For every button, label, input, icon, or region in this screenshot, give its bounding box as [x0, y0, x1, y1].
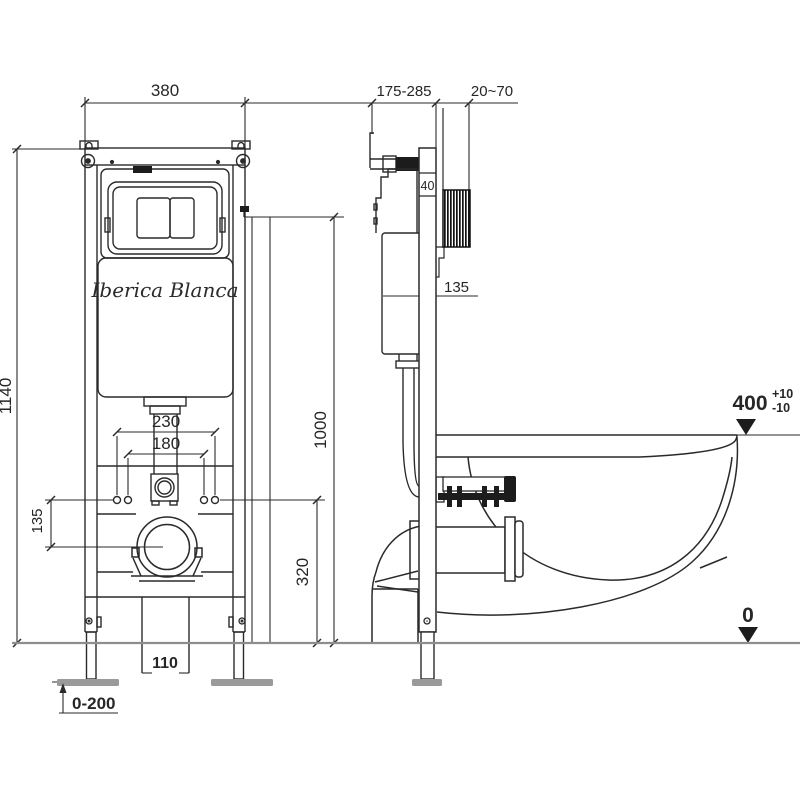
installation-frame-diagram: 380 175-285 20~70 1140 40 135 230 180 10… [0, 0, 800, 800]
dim-flush-height: 1000 [311, 411, 330, 449]
dim-foot-adjust: 0-200 [72, 694, 115, 713]
dim-outlet-height: 320 [293, 558, 312, 586]
dim-bolt-outer: 230 [152, 412, 180, 431]
toilet-bowl [436, 435, 737, 615]
dim-bolt-inner: 180 [152, 434, 180, 453]
dim-floor-level: 0 [742, 604, 754, 627]
dimension-ticks [13, 99, 473, 647]
side-foot-plate [412, 679, 442, 686]
dim-rail-depth: 40 [421, 179, 435, 193]
dim-inlet-offset: 135 [444, 279, 469, 296]
flush-plate [101, 169, 229, 258]
dim-tol-plus: +10 [772, 387, 793, 401]
dim-bottom-gap: 110 [152, 655, 178, 672]
brand-logo-text: Iberica Blanca [90, 278, 238, 302]
supply-valve-icon [240, 206, 249, 217]
level-marker-400-icon [736, 419, 756, 435]
dim-frame-height: 1140 [0, 378, 15, 415]
dim-tol-minus: -10 [772, 401, 790, 415]
dim-bowl-height: 400 [732, 392, 767, 415]
foot-plate-right [211, 679, 273, 686]
dim-outlet-offset: 135 [29, 508, 46, 533]
dim-depth-range: 175-285 [376, 83, 431, 100]
technical-drawing-page: 380 175-285 20~70 1140 40 135 230 180 10… [0, 0, 800, 800]
foot-plate-left [57, 679, 119, 686]
dim-wall-range: 20~70 [471, 83, 513, 100]
flush-button-small [170, 198, 194, 238]
flush-button-large [137, 198, 170, 238]
dim-frame-width: 380 [151, 81, 179, 100]
fixing-rods [436, 476, 516, 507]
side-view [370, 108, 758, 686]
wall-sleeve-hatch [443, 190, 470, 247]
panel-clip [133, 166, 152, 173]
waste-outlet [131, 517, 203, 581]
level-marker-0-icon [738, 627, 758, 643]
inlet-coupling [151, 474, 178, 505]
dimension-lines [12, 97, 800, 713]
